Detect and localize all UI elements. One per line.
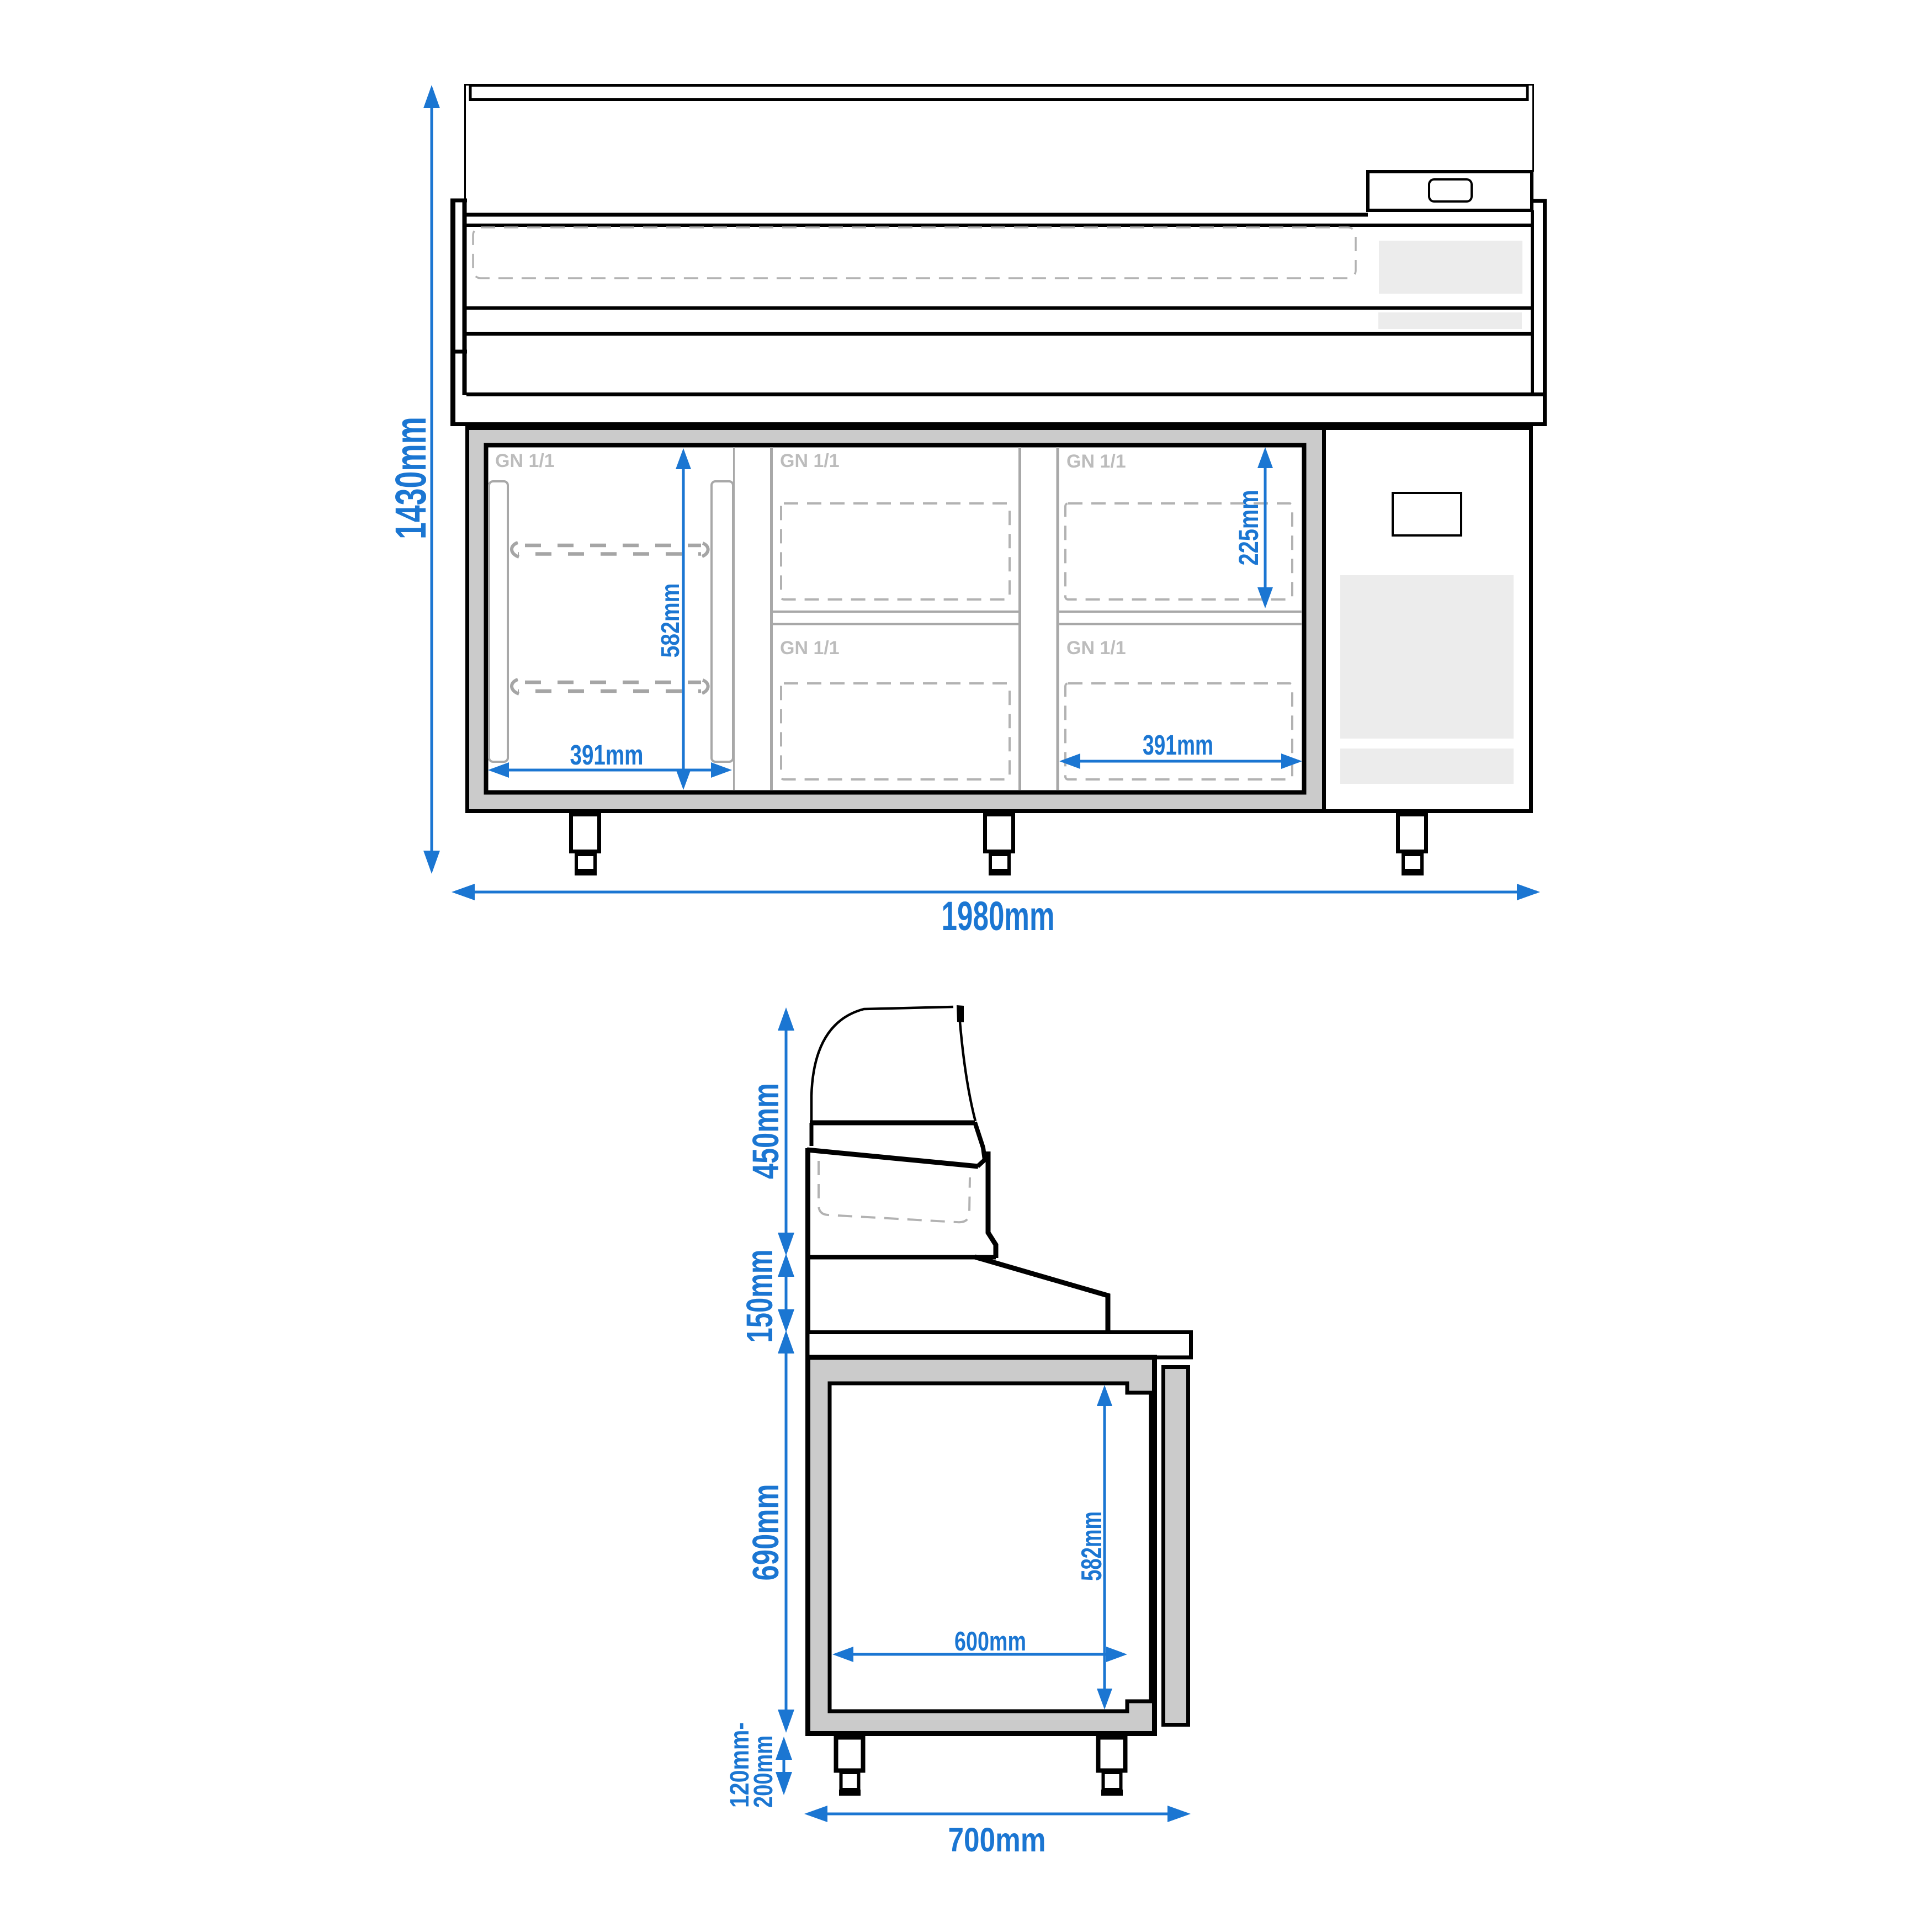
svg-text:700mm: 700mm [948, 1821, 1046, 1859]
svg-text:600mm: 600mm [954, 1627, 1026, 1657]
svg-text:391mm: 391mm [1143, 729, 1213, 761]
svg-text:391mm: 391mm [570, 739, 644, 771]
svg-text:GN 1/1: GN 1/1 [1066, 638, 1126, 659]
svg-text:150mm: 150mm [739, 1250, 781, 1343]
svg-text:582mm: 582mm [1076, 1511, 1108, 1581]
svg-text:1430mm: 1430mm [386, 417, 435, 539]
svg-text:GN 1/1: GN 1/1 [495, 450, 555, 471]
svg-text:GN 1/1: GN 1/1 [780, 450, 840, 471]
svg-text:450mm: 450mm [745, 1083, 787, 1179]
svg-text:690mm: 690mm [745, 1484, 787, 1581]
svg-text:225mm: 225mm [1233, 490, 1264, 566]
svg-text:GN 1/1: GN 1/1 [1066, 451, 1126, 472]
svg-text:1980mm: 1980mm [942, 893, 1055, 939]
svg-text:GN 1/1: GN 1/1 [780, 638, 840, 659]
svg-text:582mm: 582mm [656, 583, 684, 658]
svg-text:200mm: 200mm [749, 1735, 778, 1808]
